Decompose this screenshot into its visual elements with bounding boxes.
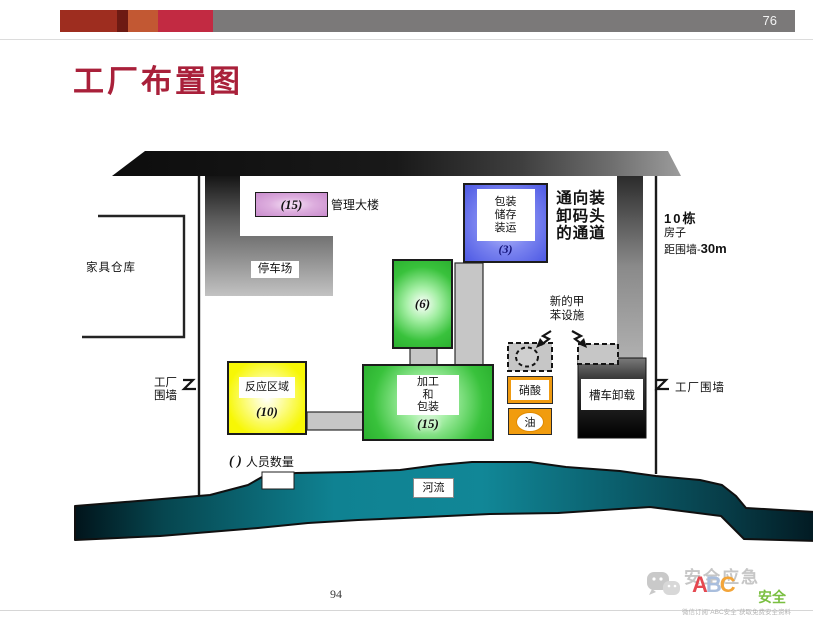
management-building-box: (15): [255, 192, 328, 217]
wechat-icon: [646, 569, 682, 601]
brand-tagline: 微信订阅"ABC安全"获取免费安全资料: [682, 606, 791, 616]
factory-wall-right-label: 工厂围墙: [675, 379, 725, 395]
personnel-legend: ( ) 人员数量: [229, 453, 294, 470]
nitric-acid-label: 硝酸: [519, 382, 541, 398]
oil-label: 油: [516, 412, 544, 432]
unit6-box: (6): [392, 259, 453, 349]
packaging-storage-text: 包装 储存 装运: [477, 189, 535, 241]
brand-letter-c: C: [720, 572, 736, 597]
processing-line: 和: [423, 389, 434, 402]
personnel-legend-symbol: ( ): [229, 454, 242, 470]
processing-line: 包装: [417, 401, 439, 414]
parking-label: 停车场: [251, 261, 299, 278]
dashed-site-rect: [578, 344, 618, 364]
processing-packaging-text: 加工 和 包装: [397, 375, 459, 415]
houses-distance-prefix: 距围墙-: [664, 244, 701, 256]
houses-note-line1: 10栋: [664, 212, 727, 225]
dashed-site-circle: [516, 348, 538, 367]
packaging-line: 包装: [495, 196, 517, 209]
wall-left-line: 工厂: [154, 377, 177, 390]
passage-line: 的通道: [553, 225, 609, 243]
river: [75, 462, 813, 541]
toluene-line: 新的甲: [543, 296, 591, 310]
warehouse-outline: [82, 216, 184, 337]
reaction-area-count: (10): [256, 404, 278, 420]
management-building-count: (15): [281, 197, 303, 213]
processing-packaging-count: (15): [417, 416, 439, 432]
corridor-reaction: [307, 412, 363, 430]
personnel-legend-label: 人员数量: [246, 453, 294, 470]
reaction-area-label: 反应区域: [239, 377, 295, 398]
zigzag-right-icon: [656, 380, 669, 389]
unit6-count: (6): [415, 296, 430, 312]
warehouse-label: 家具仓库: [86, 259, 136, 275]
packaging-storage-count: (3): [499, 242, 513, 257]
reaction-area-box: 反应区域 (10): [227, 361, 307, 435]
slide: 76 工厂布置图: [0, 0, 813, 619]
corridor-vertical: [455, 263, 483, 365]
packaging-storage-box: 包装 储存 装运 (3): [463, 183, 548, 263]
dock-passage-text: 通向装 卸码头 的通道: [553, 190, 609, 243]
processing-packaging-box: 加工 和 包装 (15): [362, 364, 494, 441]
river-dock: [262, 472, 294, 489]
passage-line: 通向装: [553, 190, 609, 208]
nitric-acid-box: 硝酸: [508, 377, 552, 403]
oil-box: 油: [508, 408, 552, 435]
houses-note-line3: 距围墙-30m: [664, 242, 727, 257]
brand-logo: 安全应急 ABC 安全 微信订阅"ABC安全"获取免费安全资料: [646, 561, 808, 613]
brand-green-text: 安全: [758, 587, 786, 607]
dock-channel: [617, 176, 643, 378]
houses-distance-value: 30m: [701, 241, 727, 256]
road: [112, 151, 681, 176]
packaging-line: 装运: [495, 222, 517, 235]
management-building-label: 管理大楼: [331, 196, 379, 213]
wall-left-line: 围墙: [154, 390, 177, 403]
processing-line: 加工: [417, 376, 439, 389]
packaging-line: 储存: [495, 209, 517, 222]
toluene-facility-note: 新的甲 苯设施: [543, 296, 591, 323]
houses-note-line2: 房子: [664, 227, 727, 240]
factory-wall-left-label: 工厂 围墙: [154, 377, 177, 402]
zigzag-left-icon: [183, 380, 196, 389]
houses-note: 10栋 房子 距围墙-30m: [664, 212, 727, 257]
passage-line: 卸码头: [553, 208, 609, 226]
toluene-line: 苯设施: [543, 310, 591, 324]
river-label: 河流: [413, 478, 454, 498]
brand-abc: ABC: [692, 574, 736, 596]
tanker-unloading-label: 槽车卸载: [581, 379, 643, 410]
